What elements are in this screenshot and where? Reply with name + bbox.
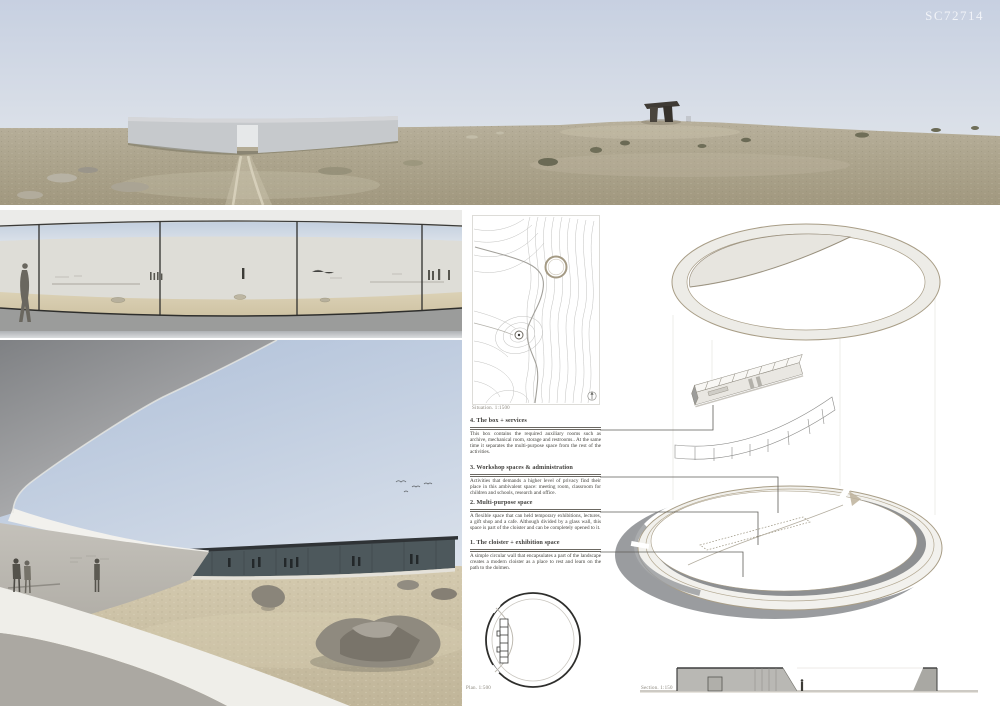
- annotation-title: 2. Multi-purpose space: [470, 499, 601, 512]
- annotation-box-services: 4. The box + services This box contains …: [470, 417, 601, 456]
- services-box: [690, 354, 808, 407]
- interior-render: [0, 210, 462, 338]
- plan-diagram: [476, 591, 588, 690]
- annotation-body: A flexible space that can held temporary…: [470, 514, 601, 532]
- site-plan-drawing: [472, 215, 600, 405]
- annotation-body: This box contains the required auxiliary…: [470, 432, 601, 456]
- section-wall: [913, 668, 937, 691]
- site-plan-caption: Situation. 1:1500: [472, 406, 510, 411]
- annotation-title: 1. The cloister + exhibition space: [470, 539, 601, 552]
- cloister-wall-ring: [615, 483, 952, 619]
- section-door: [708, 677, 722, 691]
- section-box: [677, 668, 797, 691]
- courtyard-far-wall: [0, 237, 462, 300]
- competition-code: SC72714: [925, 8, 984, 24]
- annotation-title: 3. Workshop spaces & administration: [470, 464, 601, 477]
- panorama-render: [0, 0, 1000, 205]
- north-arrow-icon: [588, 392, 596, 401]
- annotation-cloister: 1. The cloister + exhibition space A sim…: [470, 539, 601, 572]
- competition-board: Situation. 1:1500: [0, 0, 1000, 706]
- annotation-body: A simple circular wall that encapsulates…: [470, 554, 601, 572]
- exterior-render: [0, 340, 462, 706]
- annotation-body: Activities that demands a higher level o…: [470, 479, 601, 497]
- proposed-building-ring: [546, 257, 567, 278]
- annotation-title: 4. The box + services: [470, 417, 601, 430]
- roof-ring: [672, 224, 940, 340]
- annotation-multipurpose: 2. Multi-purpose space A flexible space …: [470, 499, 601, 532]
- glass-wall-panels: [675, 397, 835, 461]
- exploded-axonometric: [600, 215, 995, 645]
- plan-caption: Plan. 1:500: [466, 686, 491, 691]
- box-plan: [497, 619, 508, 663]
- section-person: [801, 679, 804, 691]
- section-drawing: [640, 640, 985, 695]
- annotation-workshop: 3. Workshop spaces & administration Acti…: [470, 464, 601, 497]
- section-caption: Section. 1:150: [641, 686, 673, 691]
